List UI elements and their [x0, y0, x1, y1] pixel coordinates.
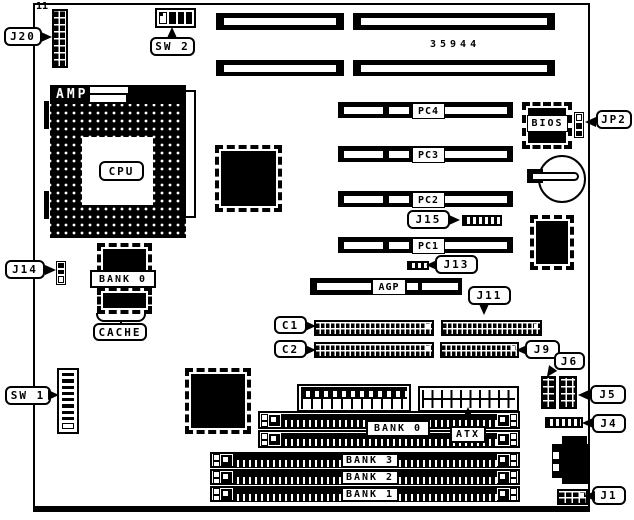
pc2-label: PC2: [412, 192, 445, 208]
pci-slot-pc2: PC2: [338, 191, 513, 207]
isa-slot-stripe: [224, 18, 336, 25]
slot-stripe: [389, 196, 409, 203]
dimm-latch-icon: [498, 434, 509, 445]
pin1-notch: [426, 346, 430, 350]
callout-j4: J4: [592, 414, 626, 433]
cache-chip-2: [97, 287, 152, 314]
pin1-notch: [511, 346, 515, 350]
zif-lever: [184, 90, 196, 218]
dimm-latch-icon: [269, 415, 280, 426]
j20-header: [52, 9, 68, 68]
callout-sw1: SW 1: [5, 386, 51, 405]
callout-c1: C1: [274, 316, 307, 334]
socket-slot-mark: [90, 95, 126, 102]
dimm-latch-icon: [498, 415, 509, 426]
callout-j15: J15: [407, 210, 450, 229]
keyboard-connector-bottom: [562, 477, 589, 484]
sw1-dip-switch: [57, 368, 79, 434]
bank0-label: BANK 0: [366, 420, 430, 437]
j1-pointer-icon: [584, 491, 595, 501]
sw1-segment: [62, 411, 74, 414]
slot-stripe: [344, 107, 383, 114]
slot-stripe: [407, 283, 418, 290]
at-power-sockets: [301, 397, 407, 409]
isa-slot-stripe: [361, 65, 547, 72]
sw2-dip-switch: [155, 8, 196, 28]
cache-brace: [96, 313, 146, 322]
j4-pointer-icon: [582, 418, 593, 428]
pin1-notch: [426, 324, 430, 328]
sw2-segment: [178, 12, 184, 24]
chipset-chip-north: [215, 145, 282, 212]
callout-j5: J5: [590, 385, 626, 404]
j14-jumper: [56, 261, 66, 285]
jumper-cell: [58, 270, 64, 275]
dimm-endcap: [213, 471, 220, 484]
j5-pointer-icon: [578, 390, 589, 400]
cpu-label: CPU: [99, 161, 144, 181]
dimm-latch-icon: [221, 472, 232, 483]
dimm-latch-icon: [221, 489, 232, 500]
io-chip: [530, 215, 574, 270]
jumper-cell: [58, 263, 64, 268]
pin1-notch: [534, 324, 538, 328]
pci-slot-pc1: PC1: [338, 237, 513, 253]
sw1-segment: [62, 386, 74, 389]
c1-pointer-icon: [305, 321, 316, 331]
sw1-segment: [62, 398, 74, 401]
c2-pointer-icon: [305, 345, 316, 355]
slot-stripe: [389, 151, 409, 158]
j20-pointer-icon: [41, 32, 52, 42]
sw1-segment: [62, 373, 74, 376]
j11-header: [441, 320, 542, 336]
slot-stripe: [317, 283, 371, 290]
slot-stripe: [389, 242, 409, 249]
slot-stripe: [443, 107, 507, 114]
cache-label: CACHE: [93, 323, 147, 341]
socket-slot-mark: [90, 87, 128, 93]
slot-stripe: [389, 107, 409, 114]
cache-bank-label: BANK 0: [90, 270, 156, 288]
c2-header: [314, 342, 434, 358]
isa-slot-stripe: [224, 65, 336, 72]
sw1-segment: [62, 404, 74, 407]
pci-slot-pc4: PC4: [338, 102, 513, 118]
callout-j11: J11: [468, 286, 511, 305]
sw1-segment: [62, 392, 74, 395]
at-power-connector: [297, 384, 411, 412]
dimm-latch-icon: [221, 455, 232, 466]
j4-header: [545, 417, 583, 428]
jp2-pointer-icon: [585, 117, 596, 127]
agp-slot: AGP: [310, 278, 462, 295]
j11-pointer-icon: [479, 304, 489, 315]
j14-pointer-icon: [45, 265, 56, 275]
jp2-jumper: [574, 112, 584, 138]
chipset-chip-south: [185, 368, 251, 434]
slot-stripe: [422, 283, 458, 290]
pc4-label: PC4: [412, 103, 445, 119]
dimm-endcap: [213, 454, 220, 467]
connector-notch: [553, 452, 559, 459]
dimm-latch-icon: [498, 489, 509, 500]
slot-stripe: [443, 242, 507, 249]
callout-j1: J1: [592, 486, 626, 505]
slot-stripe: [443, 151, 507, 158]
jumper-cell: [576, 114, 582, 121]
jumper-cell: [576, 131, 582, 136]
j9-pointer-icon: [516, 345, 527, 355]
isa-slot-2-seg-a: [216, 60, 344, 76]
dimm-latch-icon: [269, 434, 280, 445]
dimm-endcap: [261, 433, 268, 446]
pin1-marker: 11: [36, 1, 48, 12]
atx-label: ATX: [450, 426, 486, 443]
atx-pointer-icon: [463, 407, 473, 418]
sw2-segment: [186, 12, 192, 24]
dimm-endcap: [261, 414, 268, 427]
pci-slot-pc3: PC3: [338, 146, 513, 162]
isa-slot-1-seg-a: [216, 13, 344, 30]
isa-slot-stripe: [361, 18, 547, 25]
j15-pointer-icon: [449, 215, 460, 225]
agp-label: AGP: [372, 279, 406, 295]
bank1-label: BANK 1: [341, 487, 399, 502]
callout-jp2: JP2: [596, 110, 632, 129]
socket-bracket: [44, 101, 49, 129]
sw1-pointer-icon: [48, 390, 59, 400]
dimm-endcap: [510, 471, 517, 484]
callout-j20: J20: [4, 27, 42, 46]
slot-stripe: [344, 151, 383, 158]
callout-j6: J6: [554, 352, 585, 370]
dimm-endcap: [510, 433, 517, 446]
sw2-segment: [169, 12, 175, 24]
board-part-number: 35944: [430, 39, 480, 50]
motherboard-layout-diagram: 11 J20 SW 2 35944 PC4 PC3 PC2: [0, 0, 634, 520]
callout-j13: J13: [435, 255, 478, 274]
sw2-pointer-icon: [167, 27, 177, 38]
sw1-segment: [62, 379, 74, 382]
slot-stripe: [344, 196, 383, 203]
callout-j14: J14: [5, 260, 45, 279]
socket-brand: AMP: [56, 87, 88, 102]
isa-slot-2-seg-b: [353, 60, 555, 76]
atx-cells: [422, 390, 515, 408]
cpu-socket-top-bar: AMP: [50, 85, 186, 104]
slot-stripe: [443, 196, 507, 203]
dimm-endcap: [213, 488, 220, 501]
j9-header: [440, 342, 519, 358]
socket-bracket: [44, 191, 49, 219]
bios-label: BIOS: [527, 115, 568, 132]
battery-clip: [531, 172, 579, 181]
dimm-latch-icon: [498, 472, 509, 483]
j15-header: [462, 215, 502, 226]
callout-c2: C2: [274, 340, 307, 358]
jumper-cell: [576, 123, 582, 128]
sw2-segment-open: [159, 12, 167, 24]
pc3-label: PC3: [412, 147, 445, 163]
sw1-segment-open: [62, 423, 74, 429]
dimm-endcap: [510, 488, 517, 501]
sw1-segment: [62, 417, 74, 420]
isa-slot-1-seg-b: [353, 13, 555, 30]
bank3-label: BANK 3: [341, 453, 399, 468]
connector-notch: [553, 464, 559, 471]
dimm-endcap: [510, 454, 517, 467]
c1-header: [314, 320, 434, 336]
bank2-label: BANK 2: [341, 470, 399, 485]
slot-stripe: [344, 242, 383, 249]
j5-header: [559, 376, 577, 409]
callout-sw2: SW 2: [150, 37, 195, 56]
jumper-cell: [58, 276, 64, 283]
pc1-label: PC1: [412, 238, 445, 254]
dimm-endcap: [510, 414, 517, 427]
j13-pointer-icon: [426, 260, 437, 270]
dimm-latch-icon: [498, 455, 509, 466]
j6-header: [541, 376, 556, 409]
keyboard-connector-body: [552, 444, 589, 478]
